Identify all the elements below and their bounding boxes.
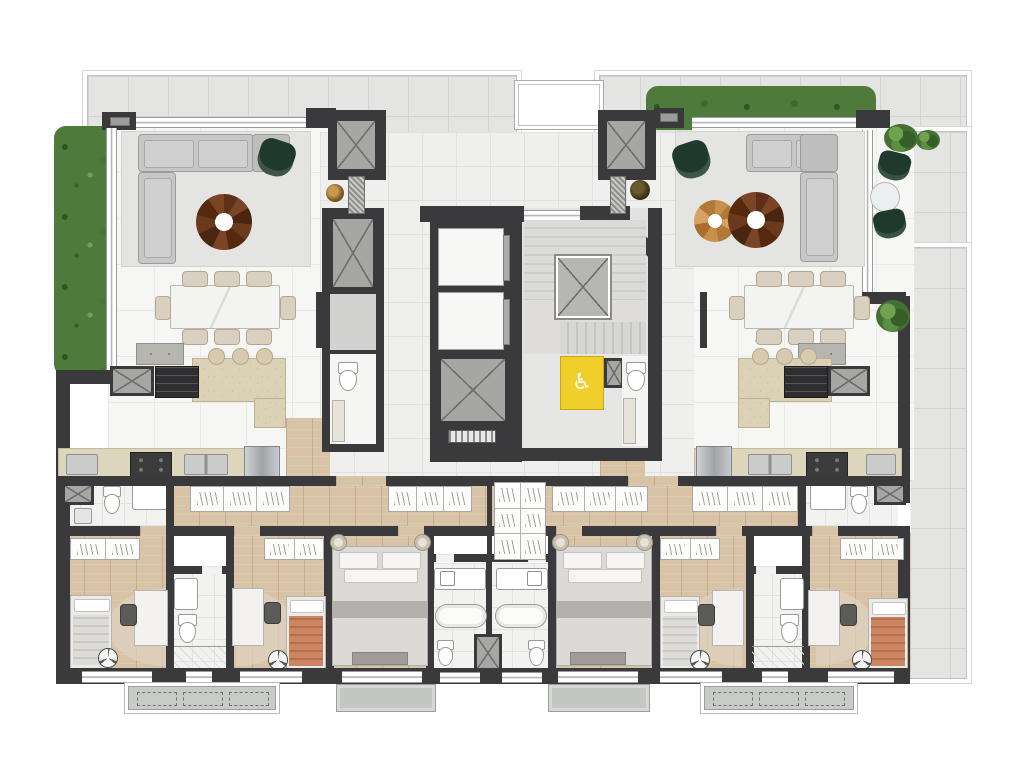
service-shaft-core	[438, 356, 508, 424]
island-stool	[752, 348, 769, 365]
terrace-right-strip	[910, 248, 966, 678]
laundry-left-vent	[62, 483, 94, 505]
wardrobe-bedroom-3	[660, 538, 720, 560]
laundry-left-toilet	[103, 486, 119, 513]
dining-chair	[788, 271, 814, 287]
kitchen-sink-right	[866, 454, 896, 475]
wall-center-closet	[487, 481, 492, 561]
shaft-small-core	[604, 358, 624, 388]
dining-chair	[182, 271, 208, 287]
pillow	[339, 552, 379, 569]
bed-bench	[352, 652, 408, 665]
vent-nw	[110, 117, 130, 126]
window-top-left	[136, 117, 308, 128]
wall-ne-block	[856, 110, 890, 128]
accessible-wc: ♿	[560, 356, 604, 410]
kitchen-black-cabinet-left	[155, 366, 199, 398]
elevator-cab-2	[438, 292, 504, 350]
lavabo-left-vanity	[332, 400, 345, 442]
desk-bedroom-3	[712, 590, 744, 646]
nightstand-lamp	[330, 534, 347, 551]
private-elevator-left	[334, 118, 378, 172]
window-bedroom-1	[82, 671, 152, 683]
window-bathM-left	[440, 672, 480, 683]
bed-single-2	[286, 596, 326, 670]
dining-chair	[280, 296, 296, 320]
dining-chair	[854, 296, 870, 320]
bath1-vanity	[174, 578, 198, 610]
blanket	[871, 617, 906, 666]
door-gap-hall-right	[628, 476, 678, 486]
dining-chair	[246, 329, 272, 345]
kitchen-shaft-right	[828, 366, 870, 396]
kitchen-island-left-ext	[254, 398, 286, 428]
sofa-left-chaise-cushion	[144, 178, 172, 258]
desk-bedroom-4	[808, 590, 840, 646]
nightstand-lamp	[414, 534, 431, 551]
sofa-right-chaise-cushion	[806, 178, 834, 256]
private-elevator-right	[604, 118, 648, 172]
bathtub-left	[435, 604, 487, 628]
kitchen-black-cabinet-right	[784, 366, 828, 398]
wall-core-right	[648, 208, 662, 460]
wall-hall-top	[56, 476, 910, 486]
ac-unit	[229, 692, 269, 706]
desk-chair-2	[264, 602, 281, 624]
wardrobe-bedroom-1	[70, 538, 140, 560]
sideboard-left	[136, 343, 184, 365]
island-stool	[208, 348, 225, 365]
wheelchair-accessible-icon: ♿	[572, 372, 592, 394]
wall-bath1-top	[166, 566, 234, 574]
bed-runner	[333, 601, 427, 618]
foyer-plant-right	[630, 180, 650, 200]
balcony-ac-right	[704, 686, 854, 710]
dining-chair	[214, 271, 240, 287]
pillow	[382, 552, 422, 569]
terrace-bush-1	[884, 124, 918, 152]
bathML-toilet	[437, 640, 452, 664]
window-top-right	[692, 117, 858, 128]
door-gap-bath1	[202, 566, 222, 574]
blanket	[289, 616, 324, 666]
ceiling-fan-icon	[852, 650, 872, 670]
closet-column-center	[494, 482, 546, 560]
window-bath-2	[762, 671, 788, 683]
pillow	[606, 552, 646, 569]
desk-chair-4	[840, 604, 857, 626]
balcony-plain-left	[336, 684, 436, 712]
nightstand-lamp	[636, 534, 653, 551]
door-gap-bath2	[756, 566, 776, 574]
balcony-plain-right	[548, 684, 650, 712]
desk-chair-3	[698, 604, 715, 626]
island-stool	[232, 348, 249, 365]
sofa-left-cushion-2	[198, 140, 248, 168]
elevator-door-2	[503, 299, 510, 346]
bed-master-right	[556, 546, 652, 666]
door-gap-bedroom-2	[234, 526, 260, 536]
bath2-vanity	[780, 578, 804, 610]
dining-chair	[756, 329, 782, 345]
vestibule-left	[330, 294, 376, 350]
coffee-table-brown-right	[728, 192, 784, 248]
laundry-left-sink	[132, 484, 168, 510]
pillow	[290, 600, 324, 614]
service-shaft-left	[330, 216, 376, 290]
skylight-opening	[514, 80, 604, 130]
entry-door-right	[700, 292, 707, 348]
sofa-left-cushion-1	[144, 140, 194, 168]
core-louver	[448, 430, 496, 443]
closet-row-masterR	[552, 486, 648, 512]
dining-chair	[155, 296, 171, 320]
bath1-toilet	[178, 614, 195, 642]
island-stool	[800, 348, 817, 365]
window-bath-1	[186, 671, 212, 683]
dining-chair	[756, 271, 782, 287]
terrace-bush-2	[916, 130, 940, 150]
fridge-right	[696, 446, 732, 480]
dining-chair	[182, 329, 208, 345]
window-master-right	[558, 671, 638, 683]
dining-table-right	[744, 285, 854, 329]
floor-plan: ♿	[0, 0, 1024, 760]
ceiling-fan-icon	[98, 648, 118, 668]
door-gap-hall-left	[336, 476, 386, 486]
laundry-right-toilet	[850, 486, 866, 513]
dining-chair	[246, 271, 272, 287]
door-gap-bedroom-1	[140, 526, 166, 536]
nightstand-lamp	[552, 534, 569, 551]
dining-chair	[820, 271, 846, 287]
bathMR-toilet	[528, 640, 543, 664]
stair-scissor-shaft	[556, 256, 610, 318]
window-bedroom-2	[240, 671, 302, 683]
pillow	[872, 602, 906, 615]
foyer-console-left	[348, 176, 365, 214]
fridge-left	[244, 446, 280, 480]
pillow	[563, 552, 603, 569]
stove-left	[130, 452, 172, 478]
door-gap-bedroom-3	[716, 526, 742, 536]
dining-chair	[729, 296, 745, 320]
kitchen-double-sink-left	[184, 454, 228, 475]
wall-core-bottom	[430, 448, 662, 461]
ceiling-fan-icon	[268, 650, 288, 670]
bed-bench	[570, 652, 626, 665]
bathML-sink	[440, 571, 455, 586]
pillow	[568, 569, 641, 583]
laundry-right-sink	[810, 484, 846, 510]
window-bathM-right	[502, 672, 542, 683]
bathtub-right	[495, 604, 547, 628]
sofa-right-corner	[800, 134, 838, 172]
foyer-plant-left	[326, 184, 344, 202]
shaft-between-baths	[474, 634, 502, 672]
foyer-console-right	[610, 176, 626, 214]
bed-runner	[557, 601, 651, 618]
terrace-bush-3	[876, 300, 910, 332]
bed-single-4	[868, 598, 908, 670]
ac-unit	[759, 692, 799, 706]
island-stool	[776, 348, 793, 365]
pillow	[74, 599, 110, 613]
window-master-left	[342, 671, 422, 683]
wall-bedrooms-top	[56, 526, 910, 536]
kitchen-island-right-ext	[738, 398, 770, 428]
kitchen-shaft-left	[110, 366, 154, 396]
ac-unit	[713, 692, 753, 706]
door-gap-bedroom-4	[812, 526, 838, 536]
balcony-ac-left	[128, 686, 276, 710]
dining-chair	[214, 329, 240, 345]
pillow	[664, 600, 698, 614]
core-wc-toilet	[626, 362, 644, 390]
bath2-toilet	[780, 614, 797, 642]
wardrobe-bedroom-4	[840, 538, 904, 560]
window-bedroom-3	[660, 671, 722, 683]
dining-table-left	[170, 285, 280, 329]
wardrobe-bedroom-2	[264, 538, 324, 560]
ceiling-fan-icon	[690, 650, 710, 670]
wall-bed3-west	[652, 526, 660, 674]
laundry-left-washer	[74, 508, 92, 524]
pillow	[344, 569, 417, 583]
ac-unit	[805, 692, 845, 706]
ac-unit	[183, 692, 223, 706]
door-gap-bathM-left	[436, 554, 454, 562]
elevator-cab-1	[438, 228, 504, 286]
sofa-right-cushion-1	[752, 140, 792, 168]
stove-right	[806, 452, 848, 478]
window-bedroom-4	[828, 671, 894, 683]
island-stool	[256, 348, 273, 365]
vent-ne	[660, 113, 678, 122]
coffee-table-brown-left	[196, 194, 252, 250]
kitchen-double-sink-right	[748, 454, 792, 475]
coffee-table-tan-left	[246, 200, 288, 242]
bed-master-left	[332, 546, 428, 666]
lavabo-left-toilet	[338, 362, 356, 390]
desk-chair-1	[120, 604, 137, 626]
ac-unit	[137, 692, 177, 706]
desk-bedroom-2	[232, 588, 264, 646]
closet-row-hall-left	[190, 486, 290, 512]
elevator-door-1	[503, 235, 510, 282]
core-wc-vanity	[623, 398, 636, 444]
kitchen-sink-left	[66, 454, 98, 475]
window-left-living	[106, 128, 117, 374]
desk-bedroom-1	[134, 590, 168, 646]
bathMR-sink	[527, 571, 542, 586]
laundry-right-vent	[874, 483, 906, 505]
stair-lower-flight	[560, 322, 646, 354]
closet-row-hall-right	[692, 486, 798, 512]
closet-row-masterL	[388, 486, 472, 512]
